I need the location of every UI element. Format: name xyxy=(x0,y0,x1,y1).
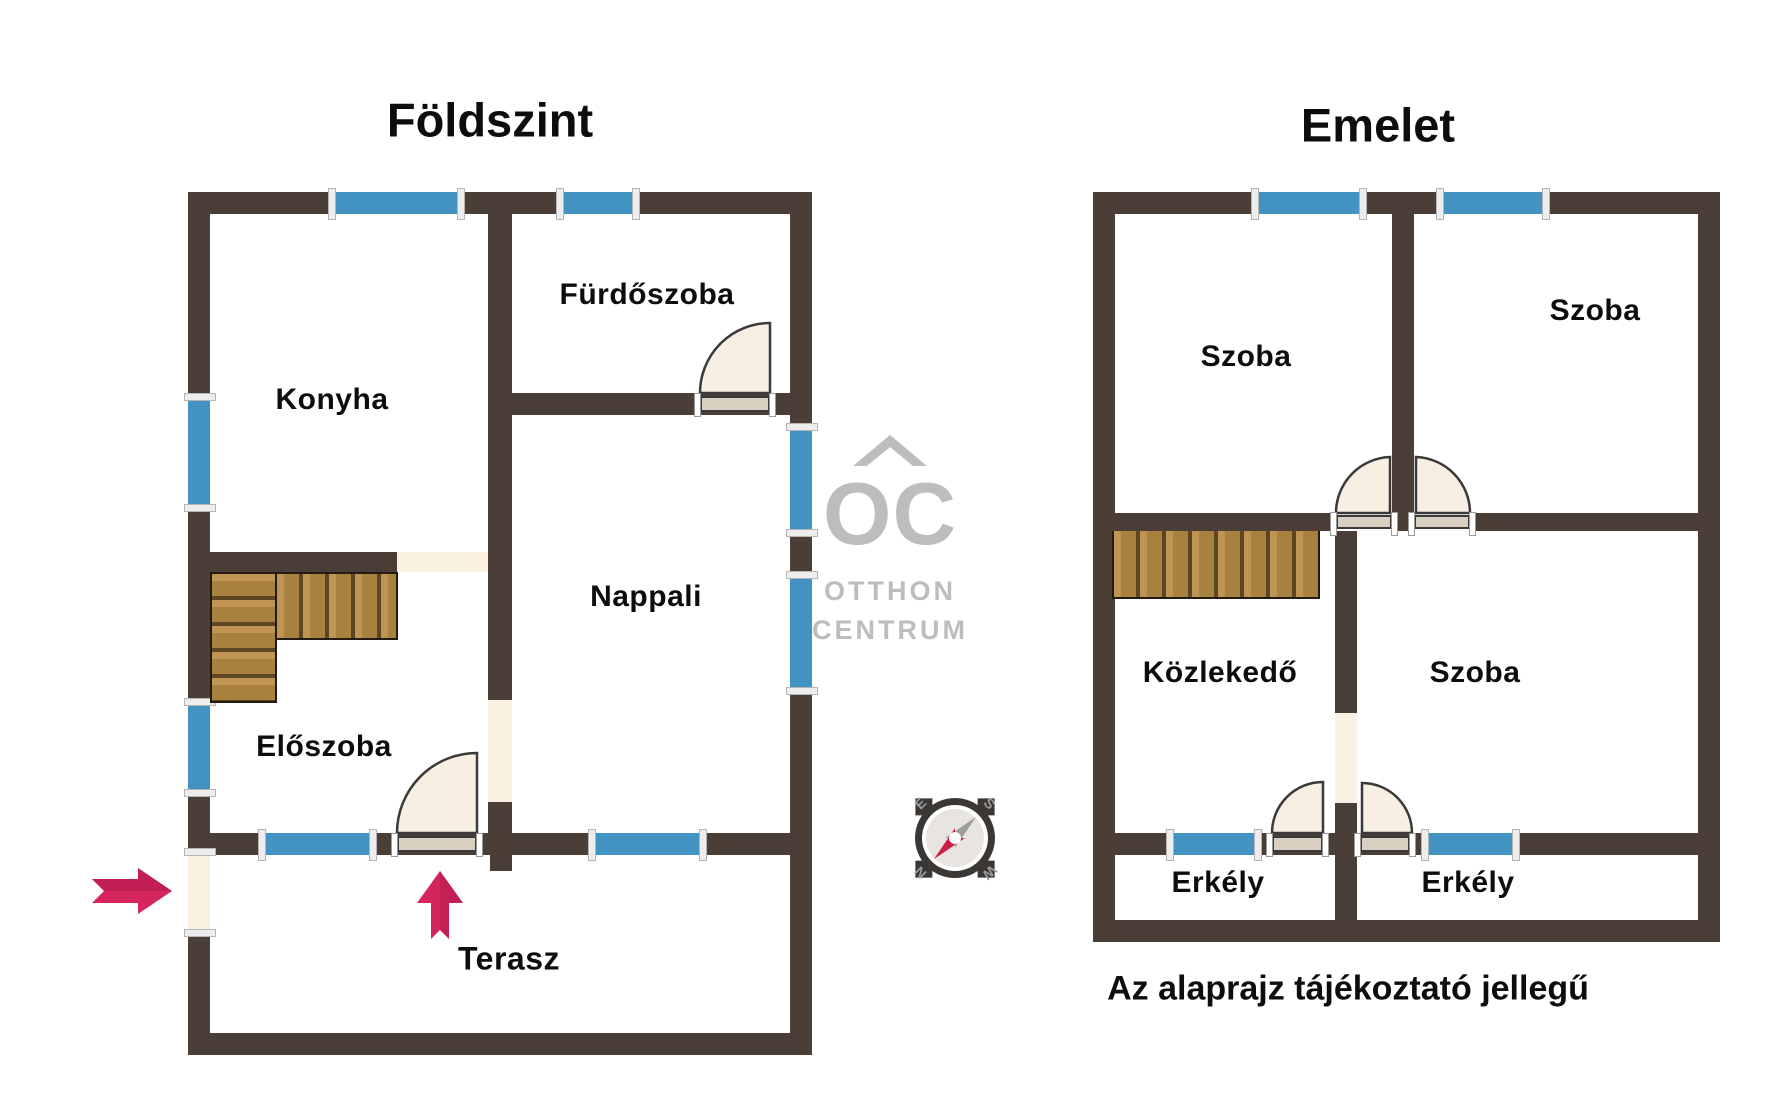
wall-segment xyxy=(1093,513,1336,531)
window xyxy=(595,833,700,855)
room-label-szoba-top-right: Szoba xyxy=(1550,294,1641,328)
terrace-arrow-icon xyxy=(416,871,464,939)
stairs-upper-floor xyxy=(1112,531,1320,599)
wall-segment xyxy=(1470,513,1720,531)
compass-icon: E S W N xyxy=(898,781,1012,895)
door-leaf xyxy=(1272,836,1323,852)
logo-monogram: OC xyxy=(812,470,968,558)
room-label-nappali: Nappali xyxy=(590,580,702,614)
window xyxy=(188,400,210,505)
wall-segment xyxy=(490,855,512,871)
door-leaf xyxy=(1336,515,1392,529)
room-label-erkely-left: Erkély xyxy=(1171,866,1264,900)
floorplan-canvas: { "floors": { "ground": { "title": "Föld… xyxy=(0,0,1780,1120)
otthon-centrum-logo: OC OTTHON CENTRUM xyxy=(812,430,968,650)
window xyxy=(1173,833,1255,855)
window xyxy=(335,192,458,214)
logo-line2: CENTRUM xyxy=(812,611,968,650)
disclaimer-caption: Az alaprajz tájékoztató jellegű xyxy=(1107,970,1589,1009)
stairs-ground-floor xyxy=(275,572,398,640)
wall-segment xyxy=(1093,920,1720,942)
window xyxy=(790,578,812,688)
window xyxy=(790,430,812,530)
door-opening xyxy=(488,700,512,802)
entrance-opening xyxy=(188,855,210,930)
wall-segment xyxy=(210,552,397,572)
room-label-eloszoba: Előszoba xyxy=(256,730,392,764)
room-label-erkely-right: Erkély xyxy=(1421,866,1514,900)
roof-chevron-icon xyxy=(851,430,929,468)
ground-floor-title: Földszint xyxy=(387,93,593,148)
wall-segment xyxy=(188,192,812,214)
room-label-szoba-top-left: Szoba xyxy=(1201,340,1292,374)
window xyxy=(188,705,210,790)
door-leaf xyxy=(1360,836,1410,852)
wall-segment xyxy=(1093,192,1720,214)
logo-line1: OTTHON xyxy=(812,572,968,611)
wall-segment xyxy=(1698,192,1720,942)
room-label-konyha: Konyha xyxy=(275,383,388,417)
door-leaf xyxy=(397,836,477,852)
window xyxy=(1428,833,1513,855)
room-label-szoba-bottom-right: Szoba xyxy=(1430,656,1521,690)
room-label-kozlekedo: Közlekedő xyxy=(1143,656,1298,690)
door-leaf xyxy=(700,396,770,412)
entrance-arrow-icon xyxy=(92,868,174,916)
wall-segment xyxy=(1392,214,1414,531)
room-label-furdoszoba: Fürdőszoba xyxy=(560,278,735,312)
door-leaf xyxy=(1414,515,1470,529)
room-label-terasz: Terasz xyxy=(458,941,560,978)
window xyxy=(563,192,633,214)
stairs-ground-floor xyxy=(210,572,277,703)
window xyxy=(1258,192,1360,214)
upper-floor-title: Emelet xyxy=(1301,98,1455,153)
window xyxy=(265,833,370,855)
wall-segment xyxy=(188,1033,812,1055)
passage-opening xyxy=(397,552,488,572)
window xyxy=(1443,192,1543,214)
door-opening xyxy=(1335,713,1357,803)
